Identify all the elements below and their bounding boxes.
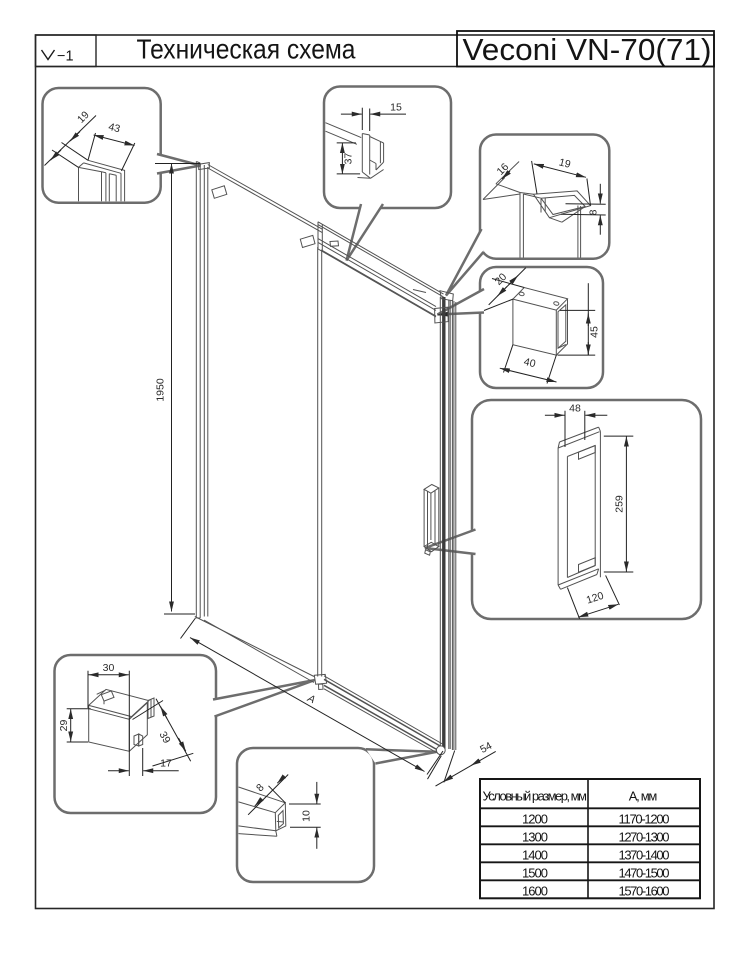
svg-text:29: 29 (58, 720, 70, 732)
svg-text:1200: 1200 (522, 811, 548, 826)
svg-text:15: 15 (390, 102, 402, 114)
svg-text:259: 259 (614, 495, 626, 513)
svg-text:1300: 1300 (522, 829, 548, 844)
svg-text:1470-1500: 1470-1500 (619, 865, 670, 880)
svg-text:37: 37 (343, 153, 355, 165)
svg-text:Условный размер, мм: Условный размер, мм (482, 789, 587, 804)
svg-text:8: 8 (588, 209, 600, 215)
svg-text:−1: −1 (57, 49, 74, 65)
svg-text:1370-1400: 1370-1400 (619, 847, 670, 862)
svg-text:1600: 1600 (522, 883, 548, 898)
svg-text:48: 48 (569, 403, 581, 415)
svg-text:1950: 1950 (155, 378, 167, 402)
svg-text:1500: 1500 (522, 865, 548, 880)
svg-text:30: 30 (103, 662, 115, 674)
svg-text:1270-1300: 1270-1300 (619, 829, 670, 844)
svg-text:Техническая схема: Техническая схема (137, 34, 356, 65)
svg-text:10: 10 (301, 810, 313, 822)
svg-text:45: 45 (589, 326, 601, 338)
svg-text:Veconi VN-70(71): Veconi VN-70(71) (463, 32, 712, 67)
svg-text:1570-1600: 1570-1600 (619, 883, 670, 898)
svg-text:А, мм: А, мм (629, 789, 658, 804)
svg-text:1400: 1400 (522, 847, 548, 862)
svg-text:1170-1200: 1170-1200 (619, 811, 670, 826)
